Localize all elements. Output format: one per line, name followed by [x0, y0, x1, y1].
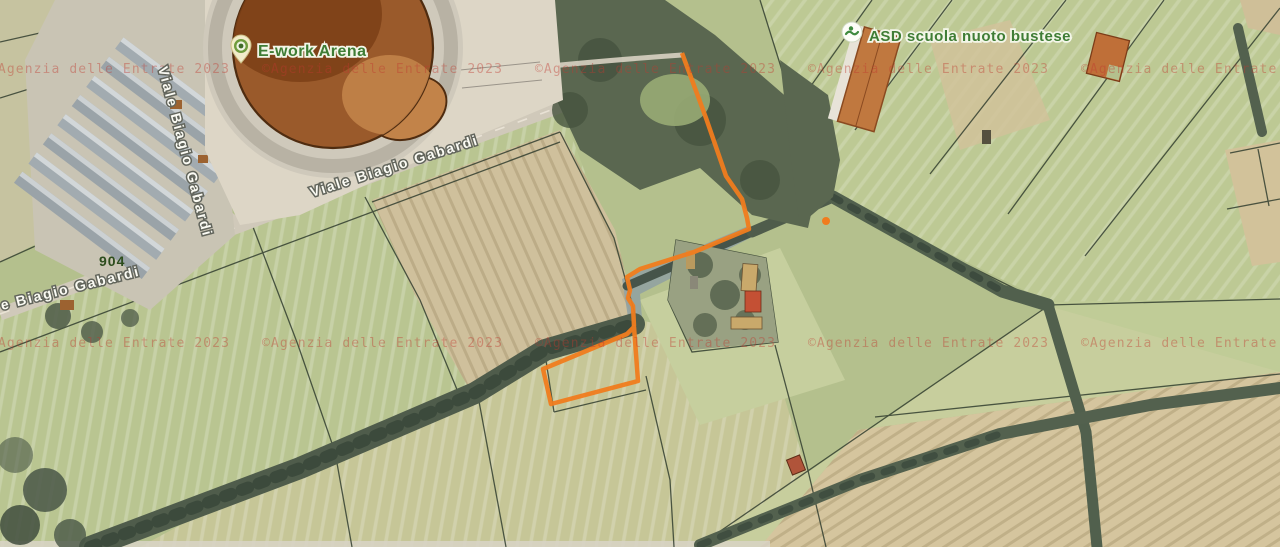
arena-poi-label: E-work Arena [258, 43, 367, 60]
parcel-number-label: 904 [99, 253, 125, 269]
watermark-text: ©Agenzia delle Entrate 2023 [0, 62, 230, 77]
swim-club-poi-label: ASD scuola nuoto bustese [869, 28, 1071, 45]
small-building [198, 155, 208, 163]
watermark-text: ©Agenzia delle Entrate 2023 [0, 336, 230, 351]
watermark-text: ©Agenzia delle Entrate 2023 [262, 336, 503, 351]
small-shed [982, 130, 991, 144]
map-canvas[interactable]: ©Agenzia delle Entrate 2023 ©Agenzia del… [0, 0, 1280, 547]
red-roof-building [745, 291, 761, 312]
small-building [60, 300, 74, 310]
selection-dot [822, 217, 830, 225]
farm-building [731, 317, 762, 329]
farm-shed [690, 276, 698, 289]
watermark-text: ©Agenzia delle Entrate 2023 [808, 336, 1049, 351]
watermark-text: ©Agenzia delle Entrate 2023 [1081, 62, 1280, 77]
watermark-text: ©Agenzia delle Entrate 2023 [262, 62, 503, 77]
satellite-map[interactable]: ©Agenzia delle Entrate 2023 ©Agenzia del… [0, 0, 1280, 547]
watermark-text: ©Agenzia delle Entrate 2023 [808, 62, 1049, 77]
farm-building [741, 264, 758, 292]
swim-poi-icon[interactable] [842, 22, 862, 42]
watermark-text: ©Agenzia delle Entrate 2023 [1081, 336, 1280, 351]
watermark-text: ©Agenzia delle Entrate 2023 [535, 336, 776, 351]
watermark-text: ©Agenzia delle Entrate 2023 [535, 62, 776, 77]
